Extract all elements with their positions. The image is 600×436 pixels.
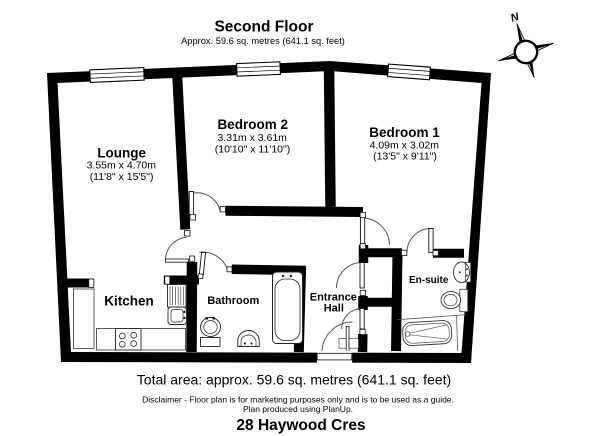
svg-text:28 Haywood Cres: 28 Haywood Cres: [236, 417, 365, 434]
svg-text:Kitchen: Kitchen: [104, 294, 154, 309]
svg-text:Disclaimer - Floor plan is for: Disclaimer - Floor plan is for marketing…: [142, 395, 454, 405]
svg-text:Approx. 59.6 sq. metres (641.1: Approx. 59.6 sq. metres (641.1 sq. feet): [181, 36, 345, 46]
svg-text:Second Floor: Second Floor: [214, 19, 313, 36]
svg-text:(10'10" x 11'10"): (10'10" x 11'10"): [215, 144, 290, 156]
svg-text:(13'5" x 9'11"): (13'5" x 9'11"): [373, 151, 437, 163]
svg-text:Total area: approx. 59.6 sq. m: Total area: approx. 59.6 sq. metres (641…: [137, 372, 451, 388]
svg-text:Plan produced using PlanUp.: Plan produced using PlanUp.: [243, 404, 353, 414]
svg-text:Lounge: Lounge: [97, 146, 146, 161]
svg-text:Bedroom 2: Bedroom 2: [217, 117, 288, 132]
svg-text:Hall: Hall: [324, 302, 344, 314]
svg-text:En-suite: En-suite: [409, 275, 449, 286]
svg-text:3.31m x 3.61m: 3.31m x 3.61m: [217, 132, 287, 144]
svg-text:(11'8" x 15'5"): (11'8" x 15'5"): [90, 171, 154, 183]
svg-text:Bedroom 1: Bedroom 1: [369, 125, 440, 140]
svg-text:3.55m x 4.70m: 3.55m x 4.70m: [87, 160, 157, 172]
svg-text:Bathroom: Bathroom: [207, 295, 259, 307]
